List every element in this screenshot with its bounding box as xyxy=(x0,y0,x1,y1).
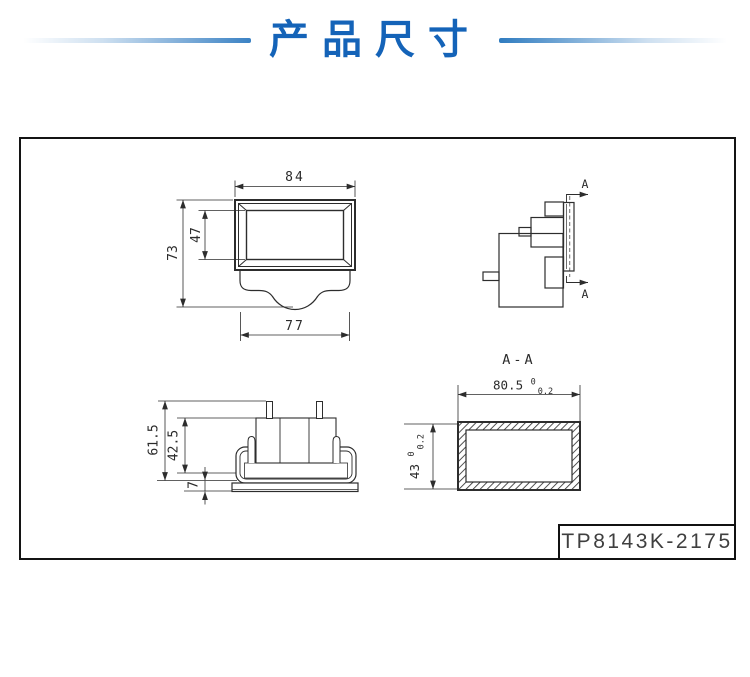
header-accent-line-left xyxy=(23,38,251,43)
header-accent-line-right xyxy=(499,38,727,43)
drawing-panel xyxy=(19,137,736,560)
model-label: TP8143K-2175 xyxy=(561,530,732,554)
page-header: 产品尺寸 xyxy=(0,10,750,70)
model-label-box: TP8143K-2175 xyxy=(558,524,736,560)
page-title: 产品尺寸 xyxy=(269,20,481,60)
page: 产品尺寸 xyxy=(0,0,750,677)
